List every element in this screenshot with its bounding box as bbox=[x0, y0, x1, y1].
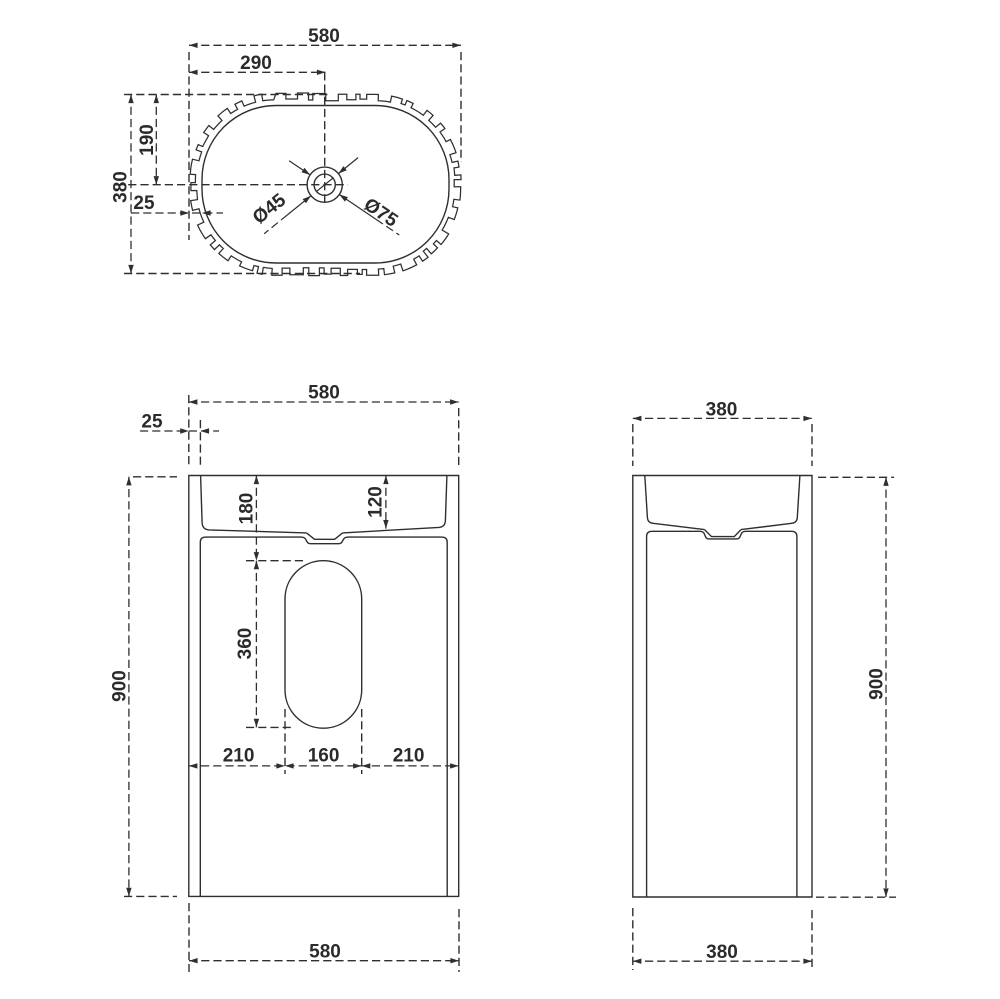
svg-text:120: 120 bbox=[366, 486, 387, 518]
svg-text:380: 380 bbox=[111, 171, 132, 203]
svg-text:190: 190 bbox=[137, 124, 158, 156]
svg-text:180: 180 bbox=[237, 493, 258, 525]
svg-text:160: 160 bbox=[308, 745, 340, 766]
svg-text:210: 210 bbox=[393, 745, 425, 766]
svg-text:360: 360 bbox=[235, 628, 256, 660]
svg-text:25: 25 bbox=[141, 411, 163, 432]
svg-text:900: 900 bbox=[867, 668, 888, 700]
svg-text:580: 580 bbox=[309, 942, 341, 963]
svg-text:580: 580 bbox=[308, 383, 340, 404]
svg-text:380: 380 bbox=[706, 942, 738, 963]
svg-text:290: 290 bbox=[240, 53, 272, 74]
svg-text:900: 900 bbox=[109, 670, 130, 702]
svg-text:210: 210 bbox=[223, 745, 255, 766]
svg-text:580: 580 bbox=[308, 26, 340, 47]
svg-text:380: 380 bbox=[706, 399, 738, 420]
svg-text:25: 25 bbox=[133, 193, 155, 214]
